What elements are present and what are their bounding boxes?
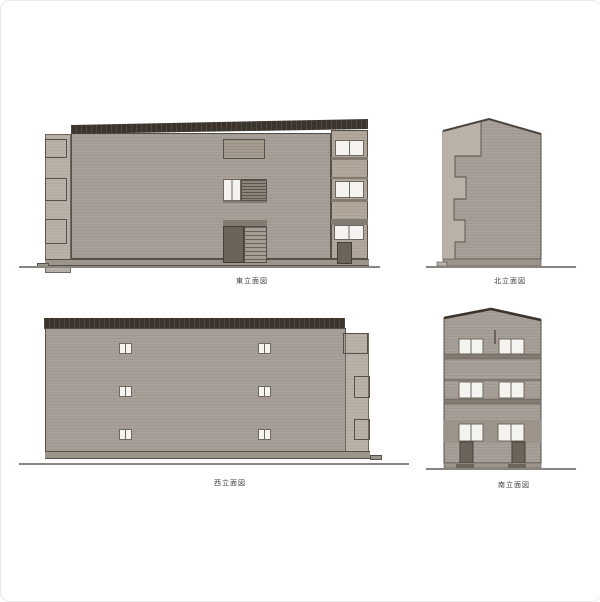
south-elevation-svg	[431, 304, 551, 472]
base-plinth	[45, 259, 369, 266]
stair-treads	[244, 226, 267, 263]
foundation-step	[370, 455, 382, 460]
entrance-door	[223, 226, 244, 263]
window	[459, 424, 483, 441]
window	[119, 343, 132, 354]
window	[459, 382, 483, 398]
window	[119, 429, 132, 440]
window	[499, 339, 524, 354]
south-elevation: 南立面図	[421, 301, 581, 487]
window	[499, 382, 524, 398]
landing-window-outline	[45, 178, 67, 201]
window	[335, 181, 364, 198]
north-elevation-label: 北立面図	[452, 277, 568, 286]
base-plinth	[443, 259, 541, 266]
window	[258, 386, 271, 397]
stairwell-window	[223, 179, 241, 201]
landing-window-outline	[45, 219, 67, 244]
window	[334, 225, 364, 240]
window	[258, 343, 271, 354]
balcony-slab	[444, 399, 541, 404]
ground-line	[19, 463, 409, 465]
north-elevation: 北立面図	[421, 111, 581, 287]
floor-slab-line	[223, 201, 267, 203]
window	[459, 339, 483, 354]
louver-panel	[223, 139, 265, 159]
east-elevation-label: 東立面図	[194, 277, 310, 286]
stairwell-louver	[241, 179, 267, 201]
entrance-door	[460, 442, 473, 463]
base-plinth	[45, 451, 370, 459]
landing-window-outline	[45, 139, 67, 158]
landing-window-outline	[354, 419, 370, 440]
window	[498, 424, 524, 441]
west-elevation-label: 西立面図	[172, 479, 288, 488]
landing-window-outline	[343, 333, 368, 354]
ground-line	[426, 266, 576, 268]
balcony-rail-line	[331, 177, 368, 179]
elevation-sheet: 東立面図 北立面図	[0, 0, 600, 602]
balcony-slab	[444, 354, 541, 359]
ground-line	[19, 266, 380, 268]
south-elevation-label: 南立面図	[456, 481, 572, 490]
floor-slab-line	[331, 157, 368, 160]
landing-window-outline	[354, 376, 370, 398]
main-wall	[45, 328, 346, 459]
entrance-door	[337, 242, 352, 264]
window	[335, 140, 364, 156]
west-elevation: 西立面図	[19, 311, 409, 489]
window	[119, 386, 132, 397]
north-elevation-svg	[431, 116, 546, 271]
window	[258, 429, 271, 440]
ground-line	[426, 468, 576, 470]
floor-slab-line	[331, 199, 368, 202]
entrance-door	[512, 442, 525, 463]
east-elevation: 東立面図	[19, 111, 381, 287]
main-wall	[71, 133, 331, 259]
